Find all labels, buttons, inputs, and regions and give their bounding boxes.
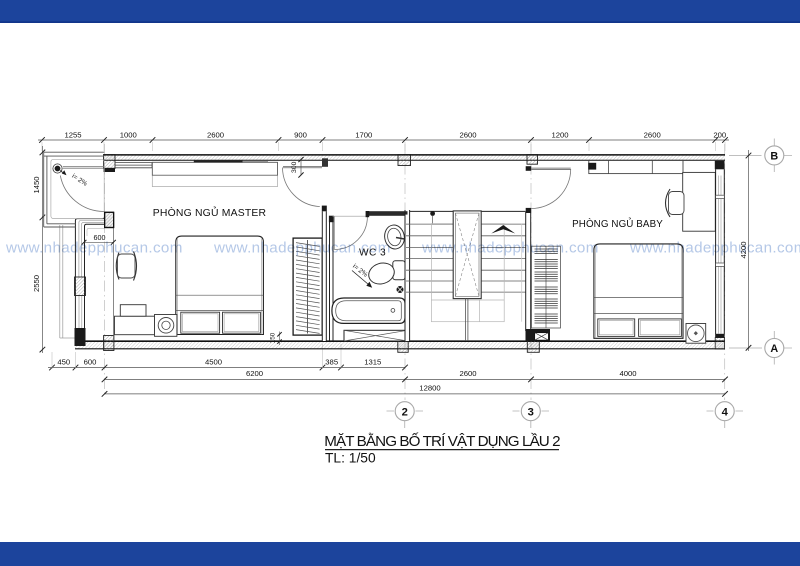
svg-text:www.nhadepphucan.com: www.nhadepphucan.com	[629, 240, 800, 257]
svg-text:2600: 2600	[459, 369, 476, 378]
svg-text:B: B	[770, 150, 778, 162]
svg-text:4500: 4500	[205, 357, 222, 366]
svg-text:1450: 1450	[32, 176, 41, 193]
svg-text:6200: 6200	[246, 369, 263, 378]
svg-text:385: 385	[325, 357, 338, 366]
svg-text:TL: 1/50: TL: 1/50	[325, 450, 376, 465]
svg-text:www.nhadepphucan.com: www.nhadepphucan.com	[5, 240, 183, 257]
svg-text:2: 2	[402, 406, 408, 418]
svg-text:1200: 1200	[551, 130, 568, 139]
svg-text:2600: 2600	[644, 130, 661, 139]
svg-text:1255: 1255	[64, 130, 81, 139]
svg-text:4: 4	[722, 406, 729, 418]
svg-text:900: 900	[294, 130, 307, 139]
svg-text:450: 450	[57, 357, 70, 366]
svg-text:PHÒNG NGỦ BABY: PHÒNG NGỦ BABY	[572, 218, 663, 230]
svg-text:200: 200	[713, 130, 726, 139]
svg-text:1700: 1700	[355, 130, 372, 139]
svg-text:www.nhadepphucan.com: www.nhadepphucan.com	[421, 240, 599, 257]
svg-text:1000: 1000	[120, 130, 137, 139]
svg-text:2600: 2600	[207, 130, 224, 139]
svg-text:3: 3	[528, 406, 534, 418]
svg-text:1315: 1315	[364, 357, 381, 366]
svg-text:A: A	[770, 343, 778, 355]
svg-text:2600: 2600	[459, 130, 476, 139]
svg-text:150: 150	[270, 332, 277, 343]
svg-text:4000: 4000	[619, 369, 636, 378]
svg-text:PHÒNG NGỦ MASTER: PHÒNG NGỦ MASTER	[153, 206, 267, 219]
svg-text:600: 600	[84, 357, 97, 366]
svg-text:www.nhadepphucan.com: www.nhadepphucan.com	[213, 240, 391, 257]
svg-text:12800: 12800	[419, 384, 440, 393]
svg-text:2550: 2550	[32, 275, 41, 292]
svg-text:300: 300	[291, 161, 298, 173]
svg-text:MẶT BẰNG BỐ TRÍ VẬT DỤNG LẦU 2: MẶT BẰNG BỐ TRÍ VẬT DỤNG LẦU 2	[324, 432, 560, 450]
